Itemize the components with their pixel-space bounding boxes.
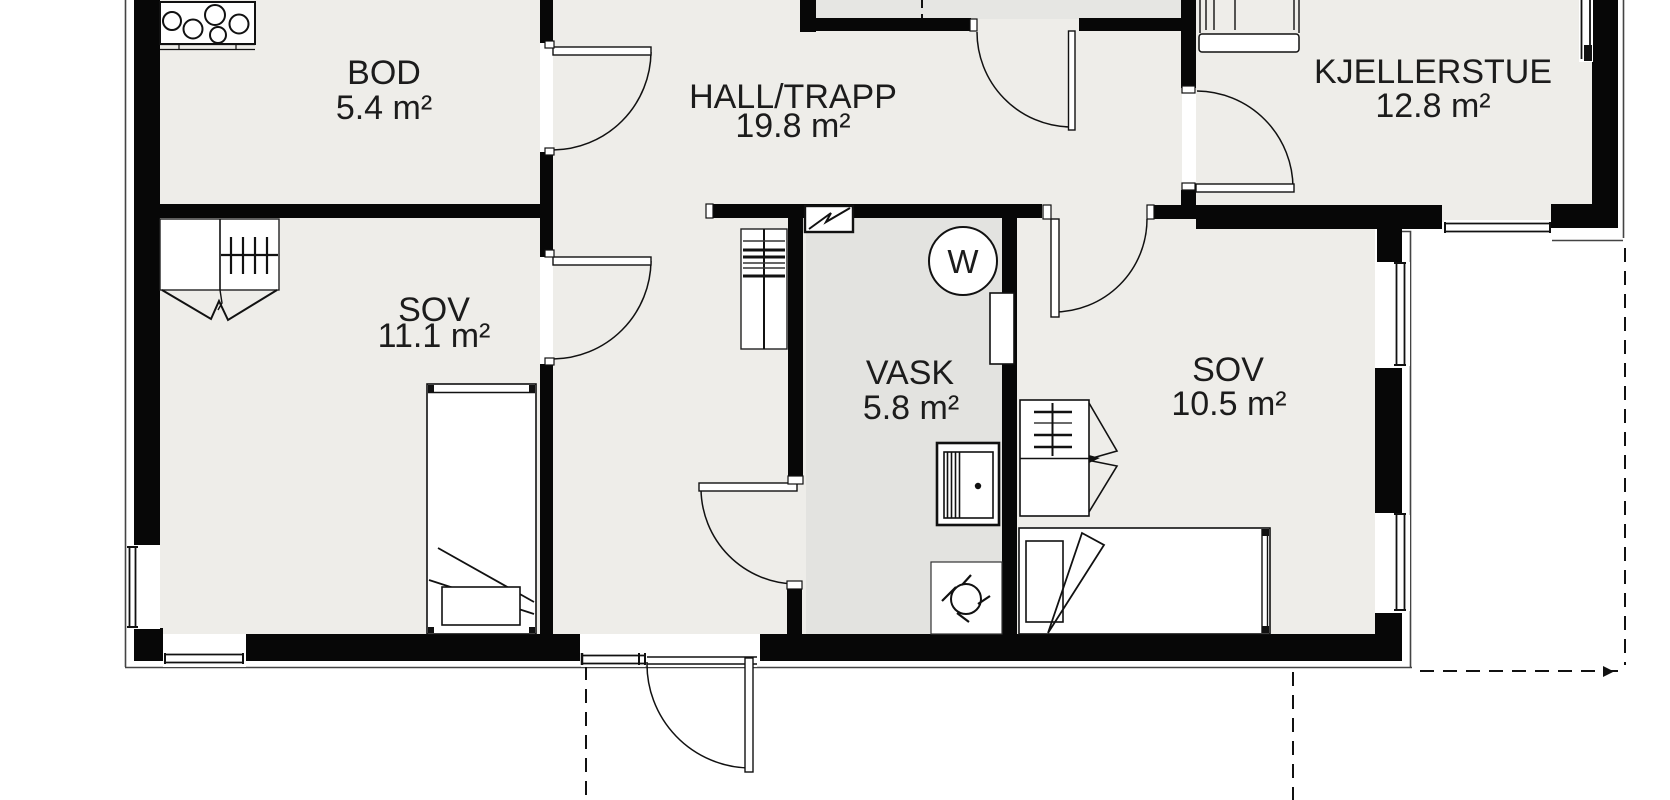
svg-text:W: W xyxy=(947,243,979,280)
svg-text:KJELLERSTUE: KJELLERSTUE xyxy=(1314,53,1552,91)
svg-text:VASK: VASK xyxy=(866,354,955,392)
svg-text:BOD: BOD xyxy=(347,54,421,92)
svg-text:19.8 m²: 19.8 m² xyxy=(735,107,850,145)
svg-text:5.8 m²: 5.8 m² xyxy=(863,389,959,427)
svg-text:5.4 m²: 5.4 m² xyxy=(336,89,432,127)
svg-text:SOV: SOV xyxy=(1192,351,1264,389)
svg-text:11.1 m²: 11.1 m² xyxy=(378,317,491,355)
svg-text:12.8 m²: 12.8 m² xyxy=(1375,87,1490,125)
svg-text:10.5 m²: 10.5 m² xyxy=(1171,385,1286,423)
